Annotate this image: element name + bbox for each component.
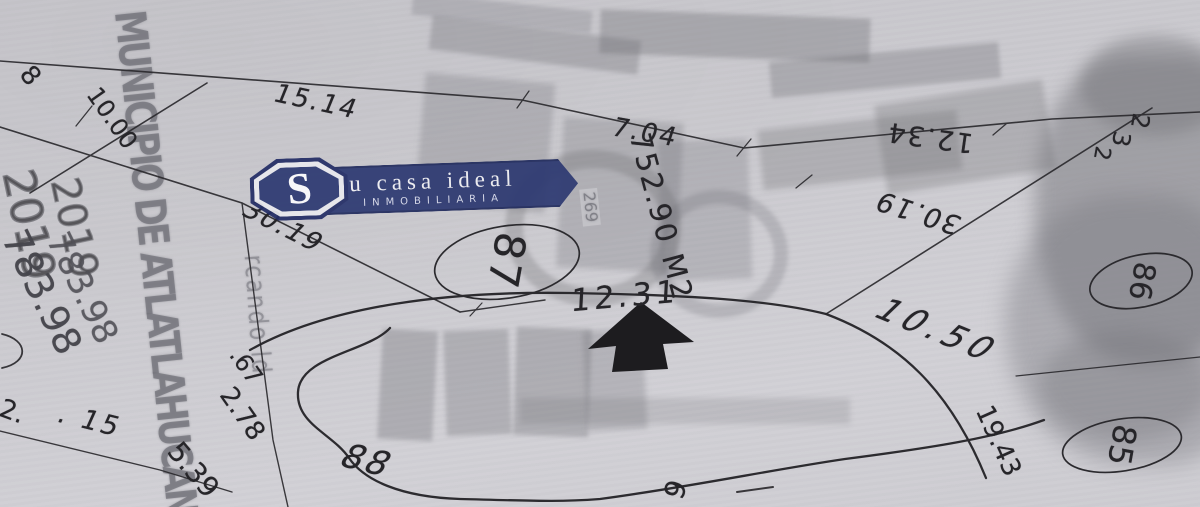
boundary-lines — [0, 0, 1200, 507]
watermark-badge-letter: S — [285, 166, 314, 212]
photographed-plan: MUNICIPIO DE ATLATLAHUCAN rcando ld 2019… — [0, 0, 1200, 507]
lot-number-85: 85 — [1103, 422, 1142, 468]
watermark-logo: u casa ideal INMOBILIARIA S — [249, 148, 581, 221]
lot-number-87: 87 — [480, 229, 531, 293]
lot-number-86: 86 — [1123, 260, 1159, 303]
